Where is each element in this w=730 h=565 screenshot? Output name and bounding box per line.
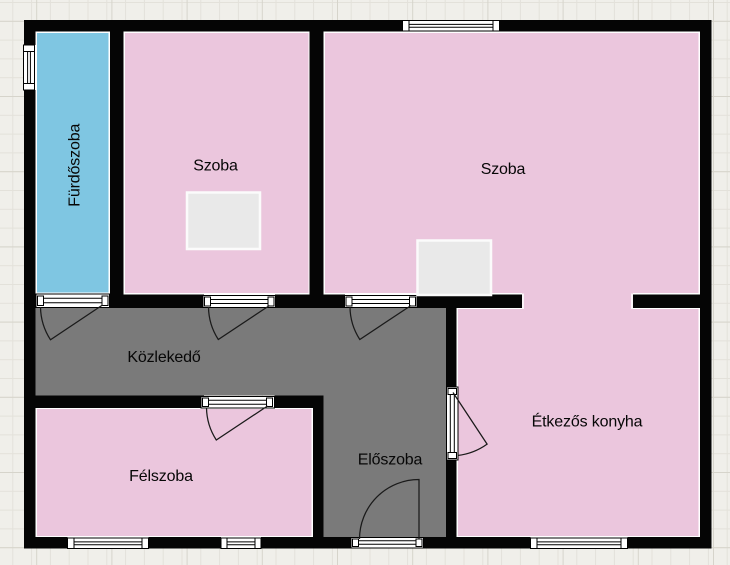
svg-text:Szoba: Szoba xyxy=(481,161,526,178)
svg-text:Szoba: Szoba xyxy=(193,158,238,175)
svg-text:Fürdőszoba: Fürdőszoba xyxy=(66,124,83,207)
svg-text:Közlekedő: Közlekedő xyxy=(127,349,201,366)
svg-text:Étkezős konyha: Étkezős konyha xyxy=(532,412,643,431)
svg-text:Előszoba: Előszoba xyxy=(358,452,423,469)
svg-text:Félszoba: Félszoba xyxy=(129,468,193,485)
